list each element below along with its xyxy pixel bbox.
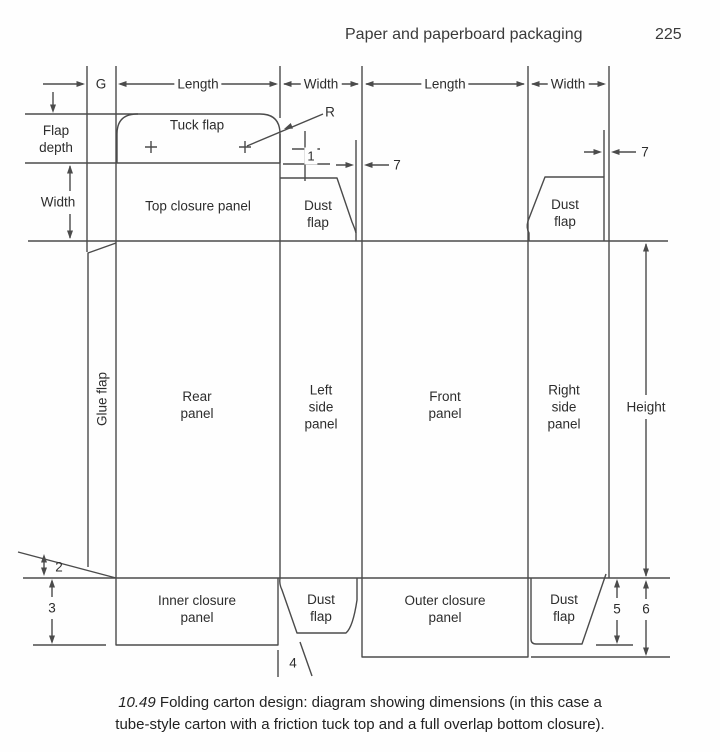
dim-label-7-left: 7 xyxy=(393,157,401,174)
radius-center-marks xyxy=(145,141,251,153)
dim-label-1: 1 xyxy=(304,148,317,165)
label-dust-flap-bottom-left: Dust flap xyxy=(307,591,335,625)
figure-number: 10.49 xyxy=(118,694,156,711)
dim-label-3: 3 xyxy=(45,600,59,617)
dim-label-width-right: Width xyxy=(548,76,589,93)
dim-label-length-front: Length xyxy=(421,76,468,93)
radius-leader-line xyxy=(247,114,323,146)
label-dust-flap-top-right: Dust flap xyxy=(551,196,579,230)
fold-lines-vertical xyxy=(87,66,609,578)
dim-label-width-left: Width xyxy=(301,76,342,93)
figure-caption-line1: 10.49 Folding carton design: diagram sho… xyxy=(0,694,720,711)
label-glue-flap: Glue flap xyxy=(94,372,111,426)
dim-label-4: 4 xyxy=(289,655,297,672)
label-tuck-flap: Tuck flap xyxy=(170,117,224,134)
dim-label-length-rear: Length xyxy=(174,76,221,93)
dim-label-6: 6 xyxy=(639,601,653,618)
label-dust-flap-bottom-right: Dust flap xyxy=(550,591,578,625)
label-flap-depth: Flap depth xyxy=(39,122,73,156)
dim-label-7-right: 7 xyxy=(641,144,649,161)
label-radius: R xyxy=(325,104,335,121)
label-rear-panel: Rear panel xyxy=(180,388,213,422)
label-right-side-panel: Right side panel xyxy=(547,382,580,433)
label-inner-closure-panel: Inner closure panel xyxy=(158,592,236,626)
caption-text-1: Folding carton design: diagram showing d… xyxy=(156,694,602,711)
label-front-panel: Front panel xyxy=(428,388,461,422)
label-top-closure-panel: Top closure panel xyxy=(145,198,251,215)
dimension-arrowheads xyxy=(41,81,649,656)
dim-label-g: G xyxy=(96,76,107,93)
label-height: Height xyxy=(623,399,668,416)
dim-label-2: 2 xyxy=(55,559,63,576)
label-width-left-side: Width xyxy=(38,194,79,211)
dim-label-5: 5 xyxy=(610,601,624,618)
label-left-side-panel: Left side panel xyxy=(304,382,337,433)
label-outer-closure-panel: Outer closure panel xyxy=(404,592,485,626)
label-dust-flap-top-left: Dust flap xyxy=(304,197,332,231)
dim7-right-lines xyxy=(584,130,636,177)
book-page: Paper and paperboard packaging 225 xyxy=(0,0,720,752)
figure-caption-line2: tube-style carton with a friction tuck t… xyxy=(0,716,720,733)
